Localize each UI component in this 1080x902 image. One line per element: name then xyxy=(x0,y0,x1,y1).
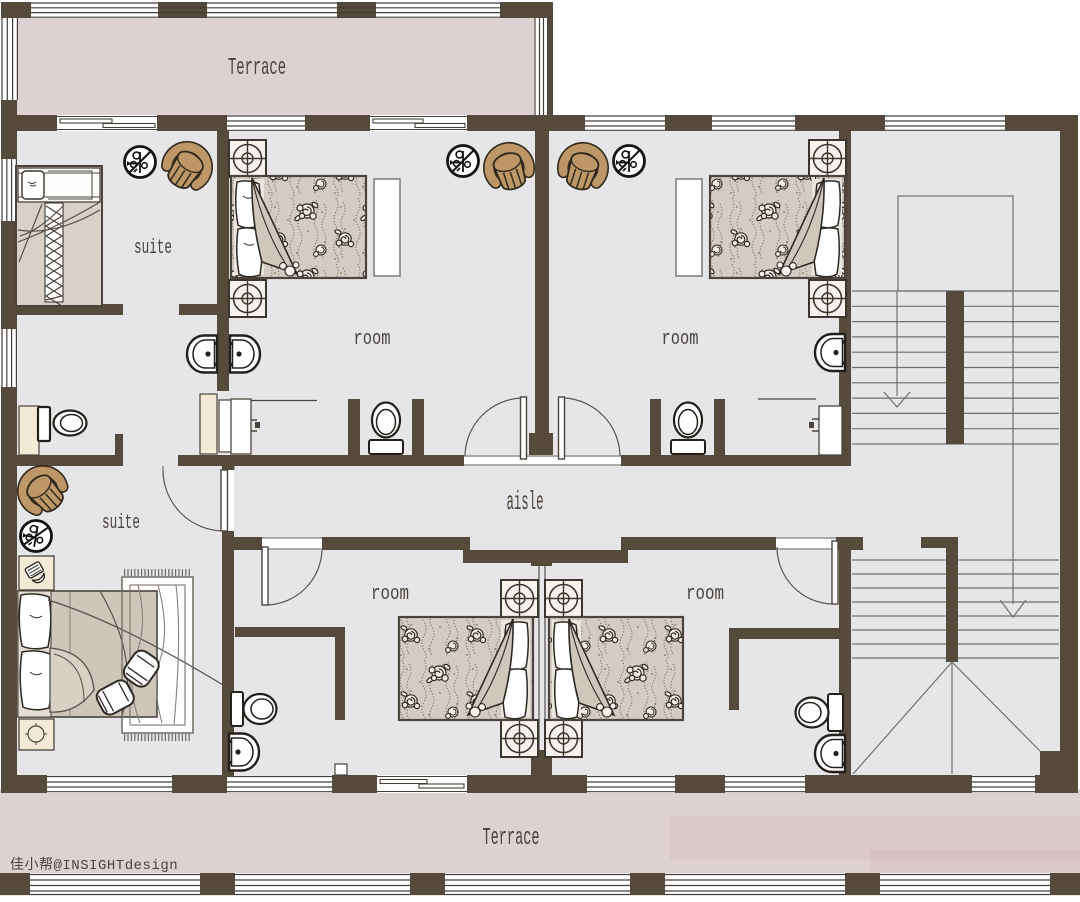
svg-text:Terrace: Terrace xyxy=(483,825,540,852)
svg-text:suite: suite xyxy=(102,512,140,535)
svg-text:room: room xyxy=(662,328,699,351)
svg-text:room: room xyxy=(686,583,724,606)
svg-text:room: room xyxy=(354,328,391,351)
svg-text:Terrace: Terrace xyxy=(228,55,286,82)
svg-text:room: room xyxy=(371,583,409,606)
svg-text:佳小帮@INSIGHTdesign: 佳小帮@INSIGHTdesign xyxy=(10,857,178,874)
svg-text:aisle: aisle xyxy=(507,487,544,517)
svg-text:suite: suite xyxy=(134,237,172,260)
